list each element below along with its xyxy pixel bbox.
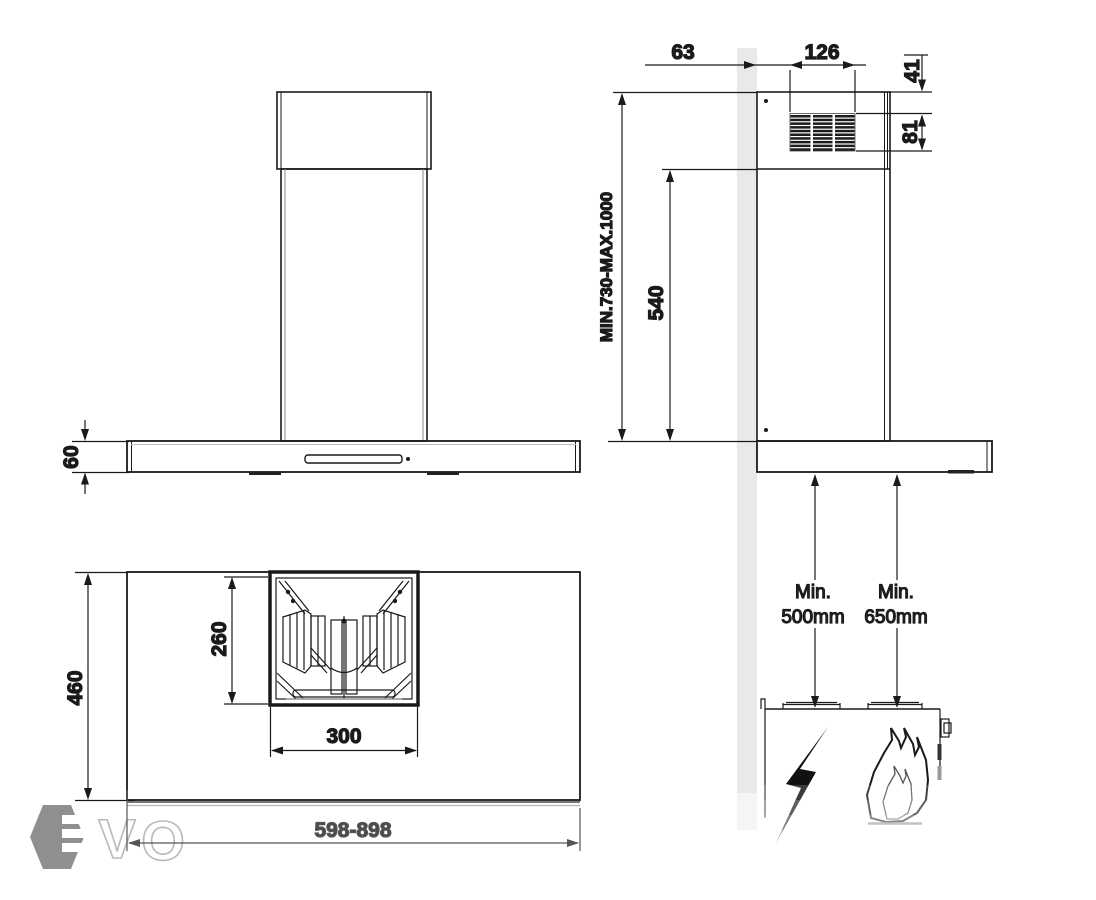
dim-41: 41 bbox=[890, 55, 932, 92]
dim-63-label: 63 bbox=[671, 41, 694, 64]
dim-81: 81 bbox=[856, 114, 932, 152]
front-canopy bbox=[127, 441, 580, 472]
installation-diagram-sheet: V O bbox=[0, 0, 1096, 900]
clearance-gas-label1: Min. bbox=[878, 582, 914, 603]
clearance-electric: Min. 500mm bbox=[781, 474, 844, 708]
hob-knob bbox=[941, 719, 951, 737]
plan-body bbox=[127, 572, 580, 800]
dim-460: 460 bbox=[64, 573, 135, 801]
wall bbox=[736, 48, 758, 830]
dim-60: 60 bbox=[60, 420, 129, 494]
front-lower-flue bbox=[281, 169, 427, 441]
dim-mount-height: MIN.730-MAX.1000 bbox=[597, 93, 757, 442]
clearance-gas-label2: 650mm bbox=[864, 607, 927, 628]
control-panel-slot bbox=[305, 455, 402, 463]
dim-260-label: 260 bbox=[208, 621, 231, 656]
vent-grille-icon bbox=[790, 114, 855, 153]
pan-support-right bbox=[868, 703, 922, 710]
dim-460-label: 460 bbox=[64, 670, 87, 705]
dim-126-label: 126 bbox=[804, 41, 839, 64]
plan-view bbox=[127, 572, 580, 806]
dim-126: 126 bbox=[790, 41, 855, 112]
front-view bbox=[127, 92, 580, 475]
dim-300-label: 300 bbox=[326, 725, 361, 748]
control-dot bbox=[406, 457, 410, 461]
dim-260: 260 bbox=[208, 577, 268, 704]
clearance-electric-label1: Min. bbox=[795, 582, 831, 603]
clearance-gas: Min. 650mm bbox=[864, 474, 929, 708]
dim-41-label: 41 bbox=[901, 59, 924, 83]
blower-cutout bbox=[270, 572, 418, 705]
dim-60-label: 60 bbox=[60, 445, 83, 468]
front-upper-flue bbox=[277, 92, 431, 169]
dimension-drawing: V O bbox=[0, 0, 1096, 900]
dim-81-label: 81 bbox=[899, 120, 922, 144]
pan-support-left bbox=[783, 703, 840, 710]
evo-letter-v: V bbox=[98, 807, 135, 870]
dim-540-label: 540 bbox=[645, 285, 668, 320]
dimension-lines: 63 126 41 81 bbox=[60, 41, 932, 851]
clearance-electric-label2: 500mm bbox=[781, 607, 844, 628]
side-flue bbox=[757, 92, 890, 441]
dim-300: 300 bbox=[271, 707, 418, 757]
fade-overlay bbox=[758, 785, 958, 852]
evo-logo: V O bbox=[30, 805, 185, 872]
side-canopy bbox=[757, 441, 992, 472]
side-view bbox=[757, 92, 992, 474]
dim-mount-height-label: MIN.730-MAX.1000 bbox=[597, 192, 616, 342]
evo-letter-o: O bbox=[141, 809, 185, 872]
dim-width-range-label: 598-898 bbox=[314, 819, 391, 842]
